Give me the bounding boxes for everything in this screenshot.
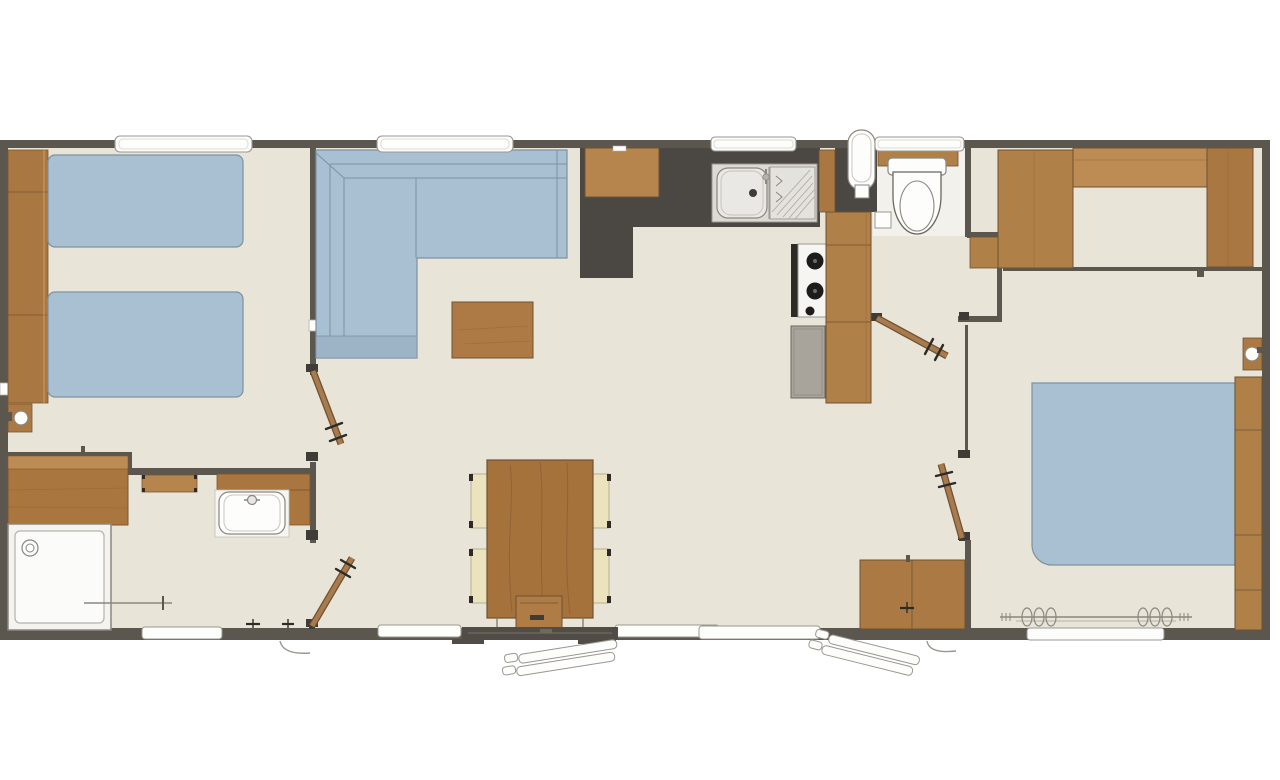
- master-wardrobe-left: [998, 150, 1073, 268]
- dining-chair-1: [471, 474, 488, 528]
- floorplan-svg: [0, 0, 1280, 780]
- vanity-top: [217, 474, 310, 490]
- chair4-arm1: [607, 549, 611, 556]
- master-lamp-mark: [1257, 347, 1263, 353]
- window-hall-bottom: [699, 626, 820, 639]
- hob-burner-1-dot: [813, 259, 817, 263]
- wall-right: [1262, 140, 1270, 640]
- master-nook-wood: [970, 237, 998, 268]
- kitchen-wood-strip: [819, 150, 835, 212]
- bath-counter-band: [8, 456, 128, 469]
- sofa-chaise-base: [316, 336, 417, 358]
- dining-bench: [516, 596, 562, 628]
- doorframe-master-top: [958, 450, 970, 458]
- window-wc: [875, 137, 964, 151]
- window-bedroom1: [115, 136, 252, 152]
- wardrobe-bedroom1: [8, 150, 48, 403]
- bath-shelf-bracket3: [142, 488, 145, 492]
- kitchen-counter-dark-return: [580, 227, 633, 278]
- dining-bench-handle: [530, 615, 544, 620]
- ext-door-swing-hall: [927, 641, 956, 652]
- twin-bed-2: [48, 292, 243, 397]
- bath-shelf-bracket4: [194, 488, 197, 492]
- window-bath-bottom: [142, 627, 222, 639]
- master-side-wardrobe: [1235, 377, 1262, 630]
- doorframe-bath-top: [306, 530, 318, 540]
- wall-master-lower: [965, 540, 971, 629]
- hob-burner-3: [806, 307, 815, 316]
- dining-chair-2: [471, 549, 488, 603]
- dining-table: [487, 460, 593, 618]
- hall-step-hook2: [808, 640, 823, 651]
- wall-lamp-bedroom1: [14, 411, 28, 425]
- hall-desk-tick: [906, 555, 910, 562]
- bath-counter-tick: [81, 446, 85, 453]
- bath-shelf-bracket2: [194, 475, 197, 479]
- chair2-arm1: [469, 549, 473, 556]
- washbasin-tap: [248, 496, 257, 505]
- kitchen-tall-cabinet: [826, 212, 871, 403]
- window-master-bottom: [1027, 628, 1164, 640]
- entrance-door-tab-left: [452, 639, 484, 644]
- sink-drain: [749, 189, 757, 197]
- hob-burner-2-dot: [813, 289, 817, 293]
- water-heater-valve: [855, 185, 869, 198]
- hall-desk: [860, 560, 965, 629]
- dining-chair-3: [592, 474, 609, 528]
- wc-switch-box: [875, 212, 891, 228]
- dining-chair-4: [592, 549, 609, 603]
- doorframe-wc-right: [959, 312, 969, 320]
- wall-vent-left: [0, 383, 8, 395]
- ext-door-swing-bath: [280, 641, 310, 653]
- kitchen-wall-table: [585, 148, 659, 197]
- master-overhead-cabinet: [1073, 148, 1207, 187]
- sink-bowl: [717, 168, 767, 218]
- shower-drain-outer: [22, 540, 38, 556]
- wall-headboard-tick: [1197, 271, 1204, 277]
- kitchen-wall-table-notch: [613, 146, 626, 151]
- bath-wall-shelf: [142, 475, 197, 492]
- chair3-arm1: [607, 474, 611, 481]
- chair4-arm2: [607, 596, 611, 603]
- chair1-arm1: [469, 474, 473, 481]
- entrance-door-notch: [540, 629, 552, 633]
- wall-bedroom1-right: [310, 148, 316, 372]
- wall-lamp-mark-bedroom1: [5, 412, 12, 421]
- chair3-arm2: [607, 521, 611, 528]
- window-dining-left: [378, 625, 461, 637]
- doorframe-bedroom1-bottom: [306, 452, 318, 461]
- master-wall-lamp: [1245, 347, 1259, 361]
- floorplan-page: [0, 0, 1280, 780]
- entrance-step-hook2: [502, 665, 516, 675]
- fridge: [791, 326, 825, 398]
- bath-shelf-bracket1: [142, 475, 145, 479]
- entrance-step-hook1: [504, 653, 518, 663]
- wall-wc-right: [965, 148, 971, 237]
- window-living: [377, 136, 513, 152]
- twin-bed-1: [48, 155, 243, 247]
- window-kitchen: [711, 137, 796, 151]
- vanity-side: [289, 490, 310, 525]
- chair1-arm2: [469, 521, 473, 528]
- chair2-arm2: [469, 596, 473, 603]
- wall-master-thin: [965, 325, 968, 453]
- master-bed: [1032, 383, 1235, 565]
- master-wardrobe-right: [1207, 148, 1253, 267]
- sink-faucet: [763, 174, 769, 180]
- hob-edge: [791, 244, 798, 317]
